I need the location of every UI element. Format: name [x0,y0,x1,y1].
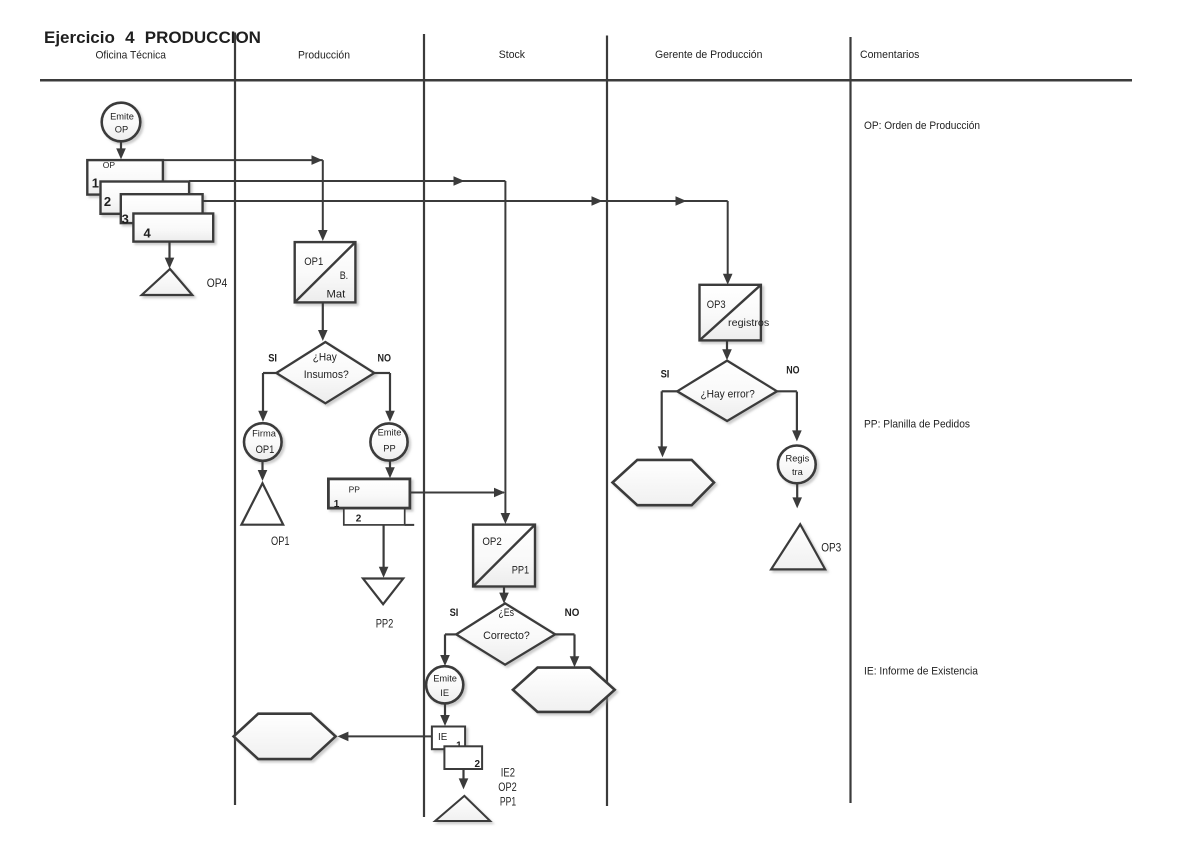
svg-text:NO: NO [565,607,580,619]
svg-text:¿Es: ¿Es [498,607,514,619]
svg-text:IE2: IE2 [501,768,515,780]
svg-text:registros: registros [728,318,769,329]
svg-text:Oficina Técnica: Oficina Técnica [95,50,166,62]
svg-text:Ejercicio 4 PRODUCCION: Ejercicio 4 PRODUCCION [44,28,261,47]
svg-text:Emite: Emite [433,674,457,684]
svg-text:SI: SI [661,369,670,381]
svg-text:Comentarios: Comentarios [860,49,920,61]
svg-text:Mat: Mat [327,289,346,301]
svg-text:PP2: PP2 [376,619,394,631]
svg-text:Firma: Firma [252,428,277,438]
svg-text:NO: NO [786,365,800,377]
svg-text:PP1: PP1 [500,796,516,808]
svg-text:OP1: OP1 [256,444,275,456]
svg-text:1: 1 [92,176,99,191]
svg-text:Producción: Producción [298,50,350,62]
svg-text:IE: IE [440,688,449,698]
svg-text:Correcto?: Correcto? [483,630,530,642]
svg-text:Gerente de Producción: Gerente de Producción [655,49,763,61]
svg-text:OP: OP [103,160,116,170]
svg-text:IE: Informe de Existencia: IE: Informe de Existencia [864,666,979,678]
svg-text:OP2: OP2 [482,536,501,548]
svg-text:SI: SI [450,607,459,619]
svg-text:PP: PP [383,444,395,454]
svg-text:4: 4 [144,226,152,241]
svg-text:2: 2 [475,759,481,770]
svg-text:SI: SI [268,353,277,365]
svg-text:Insumos?: Insumos? [304,369,349,381]
svg-text:PP: PP [349,484,361,494]
svg-text:tra: tra [792,467,804,477]
svg-text:PP: Planilla de Pedidos: PP: Planilla de Pedidos [864,419,970,431]
svg-text:Emite: Emite [378,428,402,438]
svg-text:OP2: OP2 [498,782,516,794]
svg-text:2: 2 [104,194,111,209]
svg-text:NO: NO [377,353,391,365]
svg-text:¿Hay: ¿Hay [313,352,337,364]
svg-text:OP: Orden de Producción: OP: Orden de Producción [864,120,980,132]
svg-text:OP4: OP4 [207,278,228,290]
svg-text:IE: IE [438,732,448,743]
svg-text:B.: B. [340,270,349,282]
svg-text:OP1: OP1 [271,536,290,548]
svg-text:1: 1 [334,499,340,510]
svg-text:OP3: OP3 [707,299,726,311]
svg-text:Emite: Emite [110,112,134,122]
svg-text:Stock: Stock [499,49,526,61]
svg-text:OP1: OP1 [304,256,323,268]
svg-text:OP: OP [115,125,128,135]
svg-text:3: 3 [122,211,129,226]
svg-text:PP1: PP1 [512,565,530,577]
svg-text:OP3: OP3 [821,543,841,555]
svg-text:Regis: Regis [786,454,810,464]
svg-text:¿Hay error?: ¿Hay error? [700,389,754,401]
svg-text:2: 2 [356,514,362,525]
